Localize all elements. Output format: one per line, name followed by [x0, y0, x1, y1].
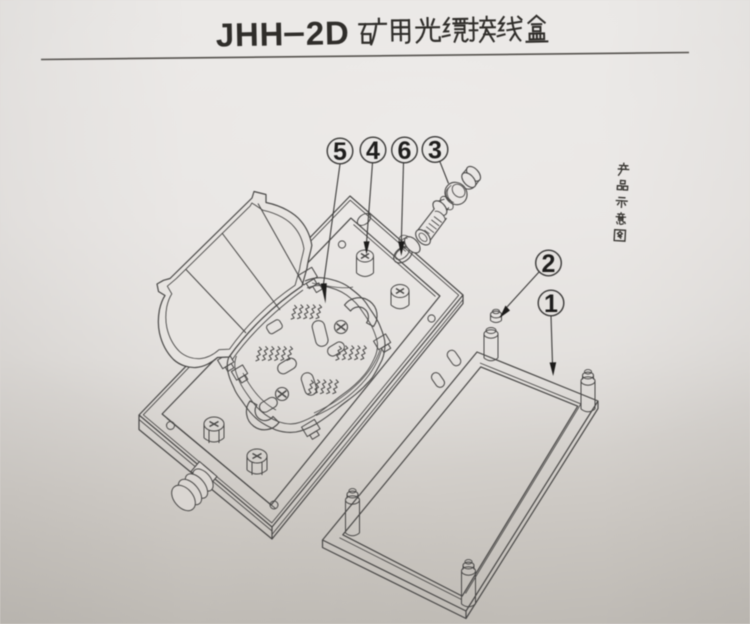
svg-text:2: 2 [542, 250, 556, 278]
svg-text:2D: 2D [305, 14, 349, 52]
svg-text:JHH: JHH [215, 15, 284, 53]
svg-text:5: 5 [333, 138, 347, 166]
svg-text:3: 3 [428, 137, 442, 165]
svg-text:1: 1 [544, 290, 558, 318]
svg-text:4: 4 [366, 137, 380, 165]
svg-text:6: 6 [398, 137, 412, 165]
